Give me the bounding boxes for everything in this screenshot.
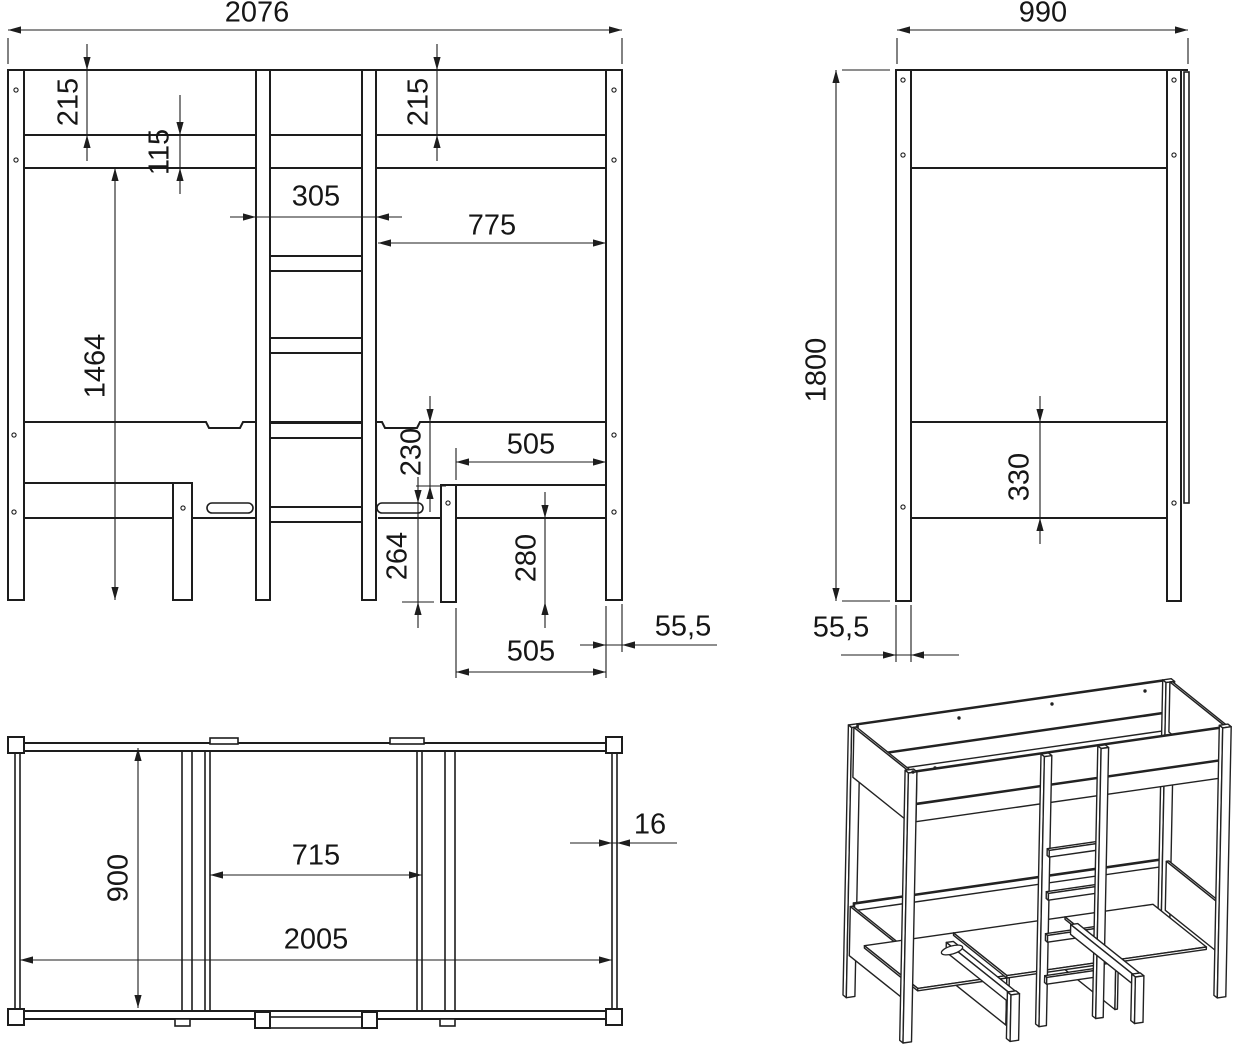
front-view: 2076215115215305775146423050526428050555… (8, 0, 717, 678)
dim-label: 215 (403, 78, 435, 126)
dim-label: 775 (468, 210, 516, 242)
side-view: 990180033055,5 (801, 0, 1189, 662)
dim-label: 715 (292, 840, 340, 872)
dim-label: 1464 (80, 334, 112, 399)
technical-drawing: 2076215115215305775146423050526428050555… (0, 0, 1239, 1064)
dim-label: 305 (292, 181, 340, 213)
dim-label: 55,5 (813, 612, 869, 644)
dim-label: 55,5 (655, 611, 711, 643)
perspective-view (843, 679, 1231, 1043)
dim-label: 2005 (284, 924, 349, 956)
dim-label: 215 (53, 78, 85, 126)
dim-label: 2076 (225, 0, 290, 29)
dim-label: 505 (507, 429, 555, 461)
drawing-sheet: 2076215115215305775146423050526428050555… (0, 0, 1239, 1064)
dim-label: 16 (634, 809, 666, 841)
dim-label: 505 (507, 636, 555, 668)
dim-label: 230 (396, 428, 428, 476)
dim-label: 330 (1004, 453, 1036, 501)
dim-label: 264 (382, 532, 414, 580)
dim-label: 1800 (801, 338, 833, 403)
dim-label: 115 (144, 129, 176, 175)
plan-view: 900715200516 (8, 737, 677, 1028)
dim-label: 900 (103, 854, 135, 902)
dim-label: 990 (1019, 0, 1067, 29)
dim-label: 280 (511, 534, 543, 582)
